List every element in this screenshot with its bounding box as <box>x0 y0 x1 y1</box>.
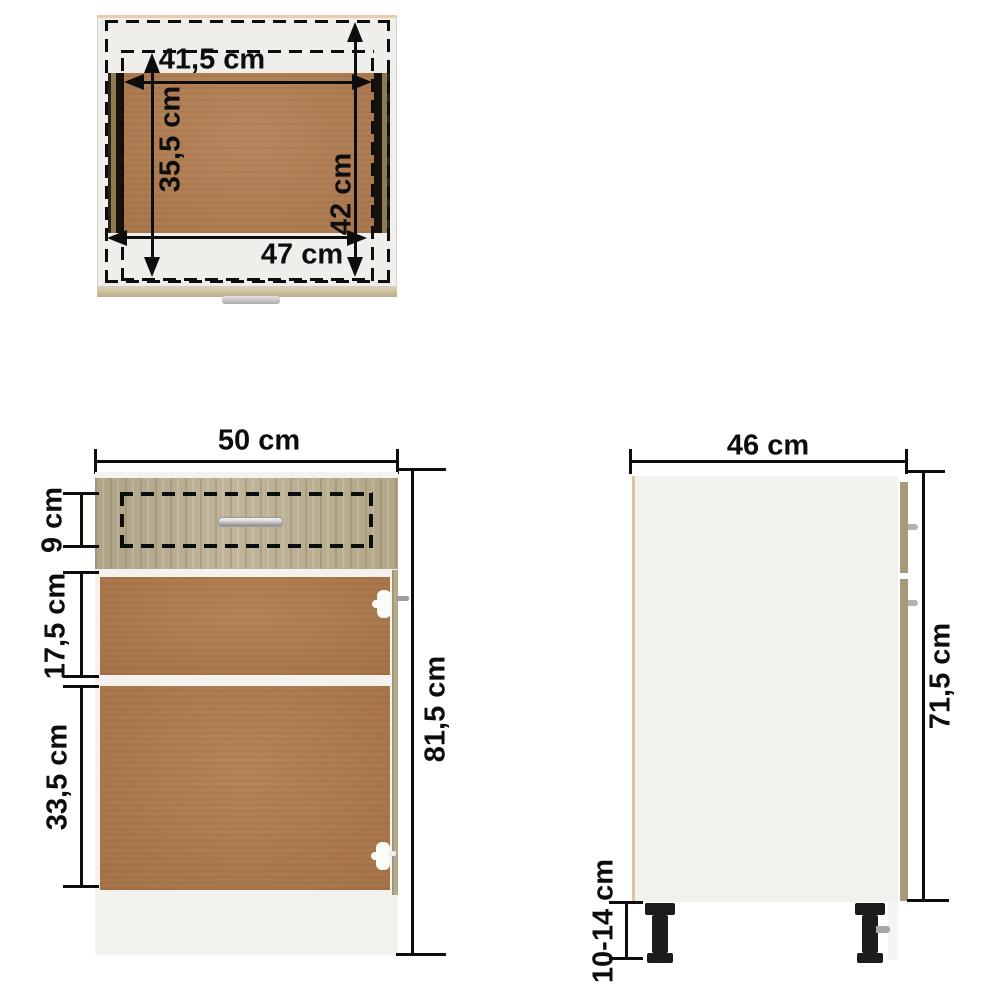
leg-back-stem <box>862 915 878 953</box>
side-panel <box>632 476 898 902</box>
leg-back-adjuster-pin <box>876 926 890 933</box>
dim-label-depth: 46 cm <box>727 432 809 461</box>
leg-back-foot <box>857 953 883 963</box>
dim-tick-top <box>907 470 945 473</box>
door-handle-side <box>908 600 918 606</box>
dim-tick-bottom <box>907 899 949 902</box>
furniture-dimension-diagram: 41,5 cm 35,5 cm 42 cm 47 cm 50 cm <box>0 0 1000 1000</box>
side-view: 46 cm 71,5 cm 10-14 cm <box>0 0 1000 1000</box>
dim-tick-left <box>629 449 632 474</box>
leg-front-foot <box>647 953 673 963</box>
drawer-front-edge <box>900 482 908 573</box>
leg-front-stem <box>652 915 668 953</box>
door-front-edge <box>900 579 908 901</box>
leg-front-top-flange <box>645 903 675 915</box>
dim-line-leg-height <box>625 903 628 960</box>
drawer-handle-side <box>908 524 918 530</box>
dim-label-leg-height: 10-14 cm <box>590 859 619 983</box>
leg-back-top-flange <box>855 903 885 915</box>
dim-label-body-height: 71,5 cm <box>927 623 956 729</box>
